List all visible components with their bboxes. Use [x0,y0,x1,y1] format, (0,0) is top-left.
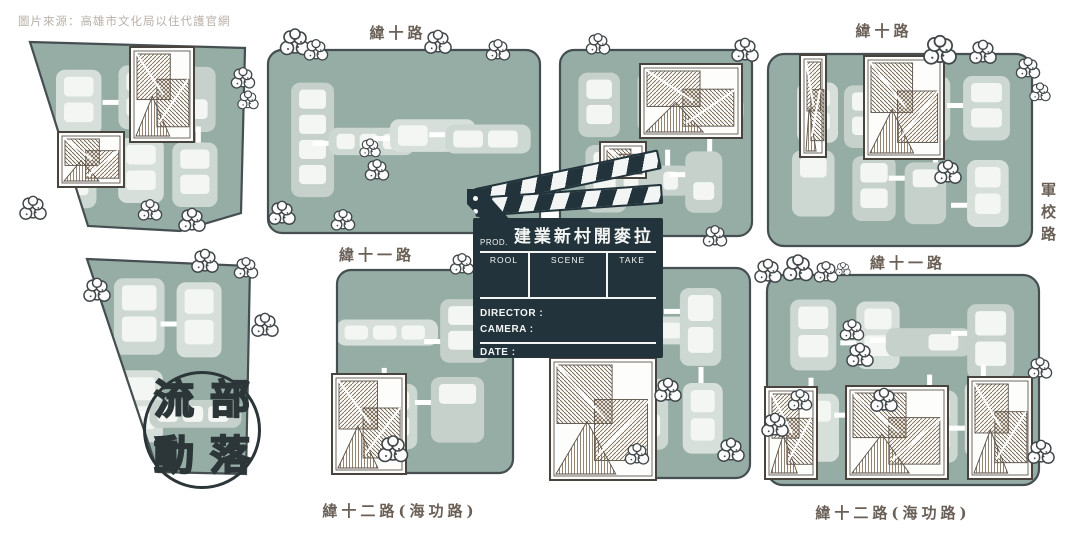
clapper-title: 建業新村開麥拉 [512,222,656,247]
street-label-wei10-right: 緯十路 [855,20,912,41]
clapper-board: PROD. 建業新村開麥拉 ROOL SCENE TAKE DIRECTOR :… [473,218,663,358]
stamp-char: 部 [210,380,250,420]
stamp-char: 流 [154,380,194,420]
camera-field: CAMERA : [480,324,656,335]
clapper-col-scene: SCENE [528,253,608,297]
stamp-char: 落 [210,436,250,476]
prod-label: PROD. [480,238,508,247]
street-label-wei11-right: 緯十一路 [870,252,946,273]
clapper-columns: ROOL SCENE TAKE [480,251,656,299]
street-label-wei11-left: 緯十一路 [339,244,415,265]
clapper-col-rool: ROOL [480,253,528,297]
clapperboard: PROD. 建業新村開麥拉 ROOL SCENE TAKE DIRECTOR :… [466,166,670,366]
date-field: DATE : [480,342,656,358]
street-label-wei12-left: 緯十二路(海功路) [322,500,477,521]
street-label-wei12-right: 緯十二路(海功路) [815,502,970,523]
stamp-char: 動 [154,436,194,476]
street-label-wei10-left: 緯十路 [369,22,426,43]
image-source-credit: 圖片來源：高雄市文化局以住代護官網 [18,13,231,29]
director-field: DIRECTOR : [480,308,656,319]
liudong-buluo-stamp: 流 部 動 落 [143,371,261,489]
clapper-col-take: TAKE [608,253,656,297]
village-map-poster: 圖片來源：高雄市文化局以住代護官網 緯十路 緯十路 軍校路 緯十一路 緯十一路 … [0,0,1080,540]
street-label-junxiao: 軍校路 [1038,182,1059,248]
